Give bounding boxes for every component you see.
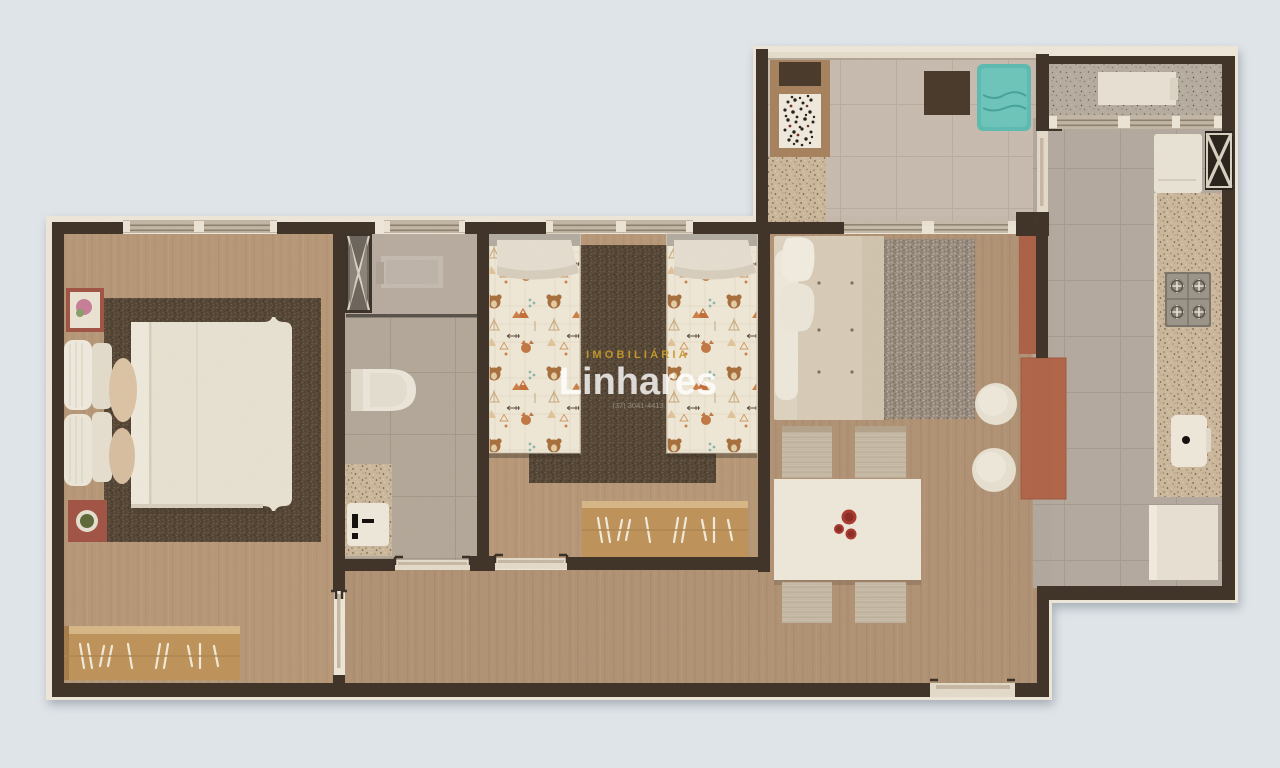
svg-text:(37) 3041-4413: (37) 3041-4413 [612, 401, 663, 410]
svg-text:IMOBILIÁRIA: IMOBILIÁRIA [586, 348, 690, 361]
svg-text:Linhares: Linhares [559, 361, 717, 403]
